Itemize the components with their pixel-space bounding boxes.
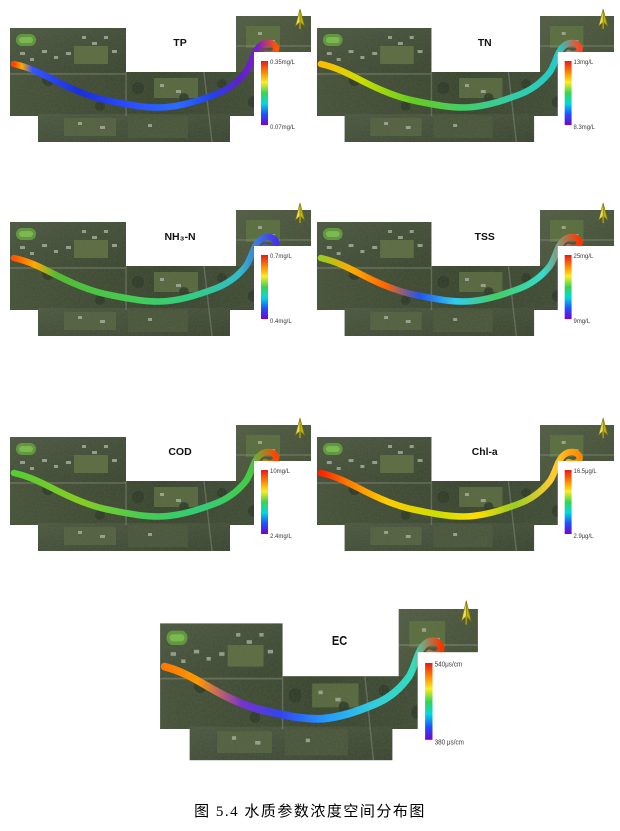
colorbar-min-label: 2.4mg/L [270,534,292,540]
satellite-map-ec: EC 540μs/cm 380 μs/cm [158,597,480,765]
figure-caption: 图 5.4 水质参数浓度空间分布图 [0,800,620,821]
satellite-map-tn: TN 13mg/L 8.3mg/L [315,6,616,146]
colorbar-max-label: 10mg/L [270,469,291,475]
colorbar-min-label: 8.3mg/L [574,125,596,131]
colorbar-max-label: 0.7mg/L [270,254,292,260]
colorbar-max-label: 540μs/cm [435,661,463,668]
colorbar-max-label: 0.35mg/L [270,60,296,66]
panel-title: NH₃-N [164,231,195,243]
colorbar-min-label: 0.4mg/L [270,319,292,325]
satellite-map-chla: Chl-a 16.5μg/L 2.9μg/L [315,415,616,555]
map-panel-tp: TP 0.35mg/L 0.07mg/L [8,6,313,146]
map-panel-nh3n: NH₃-N 0.7mg/L 0.4mg/L [8,200,313,340]
colorbar-max-label: 16.5μg/L [574,469,598,475]
panel-title: TP [173,37,186,49]
map-panel-cod: COD 10mg/L 2.4mg/L [8,415,313,555]
panel-title: TSS [475,232,495,243]
colorbar-min-label: 0.07mg/L [270,125,296,131]
panel-title: COD [168,446,192,458]
map-panel-chla: Chl-a 16.5μg/L 2.9μg/L [315,415,616,555]
colorbar-max-label: 13mg/L [574,60,594,66]
colorbar-min-label: 380 μs/cm [435,739,465,746]
satellite-map-nh3n: NH₃-N 0.7mg/L 0.4mg/L [8,200,313,340]
panel-title: EC [332,633,348,648]
map-panel-tss: TSS 25mg/L 9mg/L [315,200,616,340]
satellite-map-tss: TSS 25mg/L 9mg/L [315,200,616,340]
satellite-map-tp: TP 0.35mg/L 0.07mg/L [8,6,313,146]
colorbar-min-label: 2.9μg/L [574,534,595,540]
satellite-map-cod: COD 10mg/L 2.4mg/L [8,415,313,555]
map-panel-tn: TN 13mg/L 8.3mg/L [315,6,616,146]
panel-title: TN [478,38,492,49]
colorbar-max-label: 25mg/L [574,254,594,260]
colorbar-min-label: 9mg/L [574,319,591,325]
panel-title: Chl-a [472,447,498,458]
map-panel-ec: EC 540μs/cm 380 μs/cm [158,597,480,765]
